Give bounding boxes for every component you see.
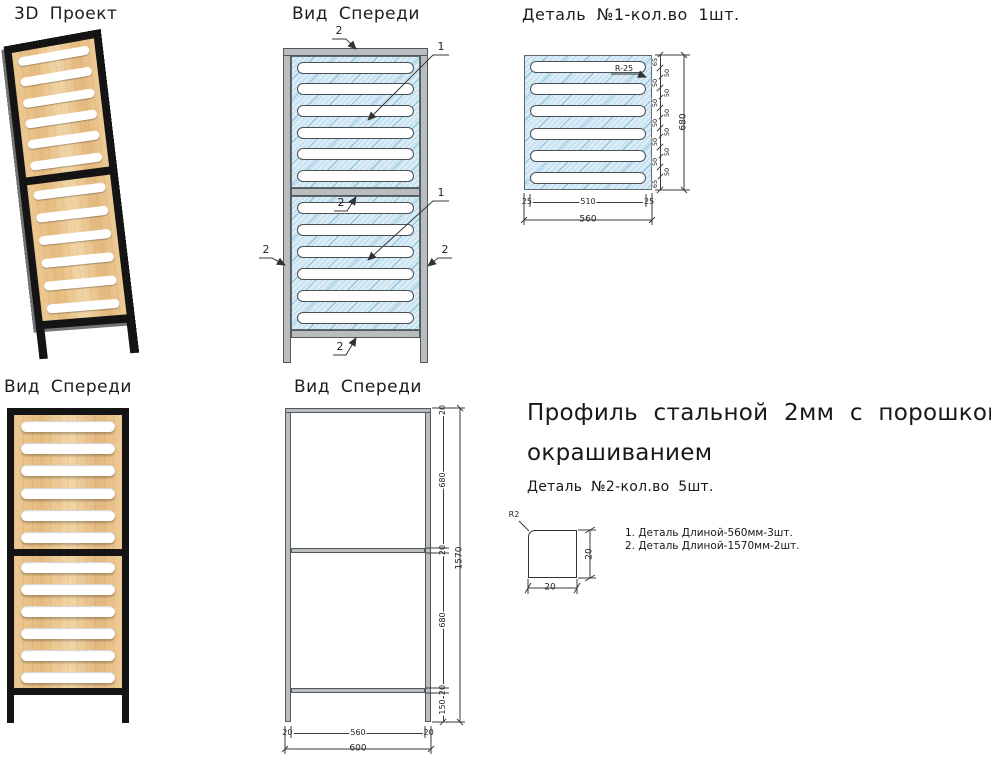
dim-label: 20 [439,684,447,696]
slot [27,131,100,150]
slot [297,105,414,117]
slot [21,672,115,683]
slot [297,127,414,139]
dim-label: 50 [664,147,671,157]
profile-width-dim: 20 [542,584,557,593]
spec-note-1: 1. Деталь Длиной-560мм-3шт. [625,527,800,540]
dim-label: 150 [439,698,447,715]
frame-mid-bar [291,548,425,553]
slot [21,584,115,595]
spec-note-2: 2. Деталь Длиной-1570мм-2шт. [625,540,800,553]
frame-left-rail [285,408,291,722]
front-panel-upper [291,56,420,188]
slot [530,105,646,117]
slot [297,246,414,258]
title-front-view: Вид Спереди [292,4,420,24]
slot [46,299,120,314]
callout-bottom-bar: 2 [337,341,344,352]
slot [18,45,90,66]
slot [21,650,115,661]
dim-label: 20 [281,729,293,737]
slot [21,628,115,639]
slot [530,128,646,140]
slot [21,510,115,521]
drawing-sheet: 3D Проект Вид Спереди Деталь №1-кол.во 1… [0,0,991,760]
3d-panel-upper [12,38,109,177]
render-panel-lower [14,556,122,688]
dim-label: 50 [664,107,671,117]
slot [297,312,414,324]
detail1-panel [524,55,652,190]
slot [21,465,115,476]
slot [530,172,646,184]
spec-heading-line2: окрашиванием [527,440,712,466]
front-bottom-bar [291,330,420,338]
3d-render [4,29,140,361]
slot [23,88,95,108]
slot [25,109,97,129]
3d-leg-left [36,327,48,359]
detail1-bottom-total: 560 [577,216,598,225]
front-right-rail [420,48,428,363]
render-panel-upper [14,415,122,549]
dim-label: 560 [349,729,366,737]
3d-leg-right [126,320,139,353]
dim-label: 50 [664,127,671,137]
dim-label: 20 [439,544,447,556]
profile-height-dim: 20 [586,546,595,561]
slot [297,202,414,214]
detail1-radius-label: R-25 [613,65,635,73]
dim-label: 50 [664,167,671,177]
dim-label: 680 [439,471,447,488]
dim-label: 25 [521,198,533,206]
profile-square [528,530,577,578]
profile-radius-label: R2 [507,511,522,519]
slot [297,83,414,95]
slot [33,182,106,200]
dim-label: 20 [423,729,435,737]
slot [20,67,92,88]
slot [44,275,117,291]
dim-label: 680 [439,611,447,628]
detail1-side-total: 680 [680,111,689,132]
spec-subheading: Деталь №2-кол.во 5шт. [527,479,714,495]
dim-label: 50 [652,97,659,107]
dim-label: 50 [652,157,659,167]
slot [297,290,414,302]
slot [41,252,114,268]
3d-panel-lower [27,175,127,321]
frame-bottom-bar [291,688,425,693]
callout-mid-bar: 2 [338,197,345,208]
callout-right-rail: 2 [442,244,449,255]
frame-right-rail [425,408,431,722]
dim-tick [439,718,446,725]
callout-left-rail: 2 [263,244,270,255]
front-mid-bar [291,188,420,196]
render-mid-bar [7,549,129,556]
dim-label: 65 [652,56,659,66]
slot [297,148,414,160]
dim-label: 50 [664,68,671,78]
frame-top-bar [285,408,431,413]
title-3d-view: 3D Проект [14,4,117,24]
slot [21,532,115,543]
3d-frame [4,29,136,330]
dim-label: 20 [439,404,447,416]
title-render-view: Вид Спереди [4,377,132,397]
slot [530,150,646,162]
slot [297,224,414,236]
front-panel-lower [291,196,420,330]
frame-side-total: 1570 [456,545,465,572]
dim-label: 65 [652,178,659,188]
slot [36,206,109,223]
dim-label: 50 [652,137,659,147]
dim-label: 50 [652,78,659,88]
title-frame-view: Вид Спереди [294,377,422,397]
render-leg-left [7,695,14,723]
title-detail1: Деталь №1-кол.во 1шт. [522,5,740,24]
dim-label: 510 [579,198,596,206]
spec-heading-line1: Профиль стальной 2мм с порошковым [527,400,991,426]
slot [530,83,646,95]
slot [21,421,115,432]
dim-label: 50 [652,117,659,127]
slot [21,562,115,573]
frame-bottom-total: 600 [347,745,368,754]
slot [38,229,111,246]
slot [21,488,115,499]
callout-lower-panel: 1 [438,187,445,198]
spec-notes: 1. Деталь Длиной-560мм-3шт. 2. Деталь Дл… [625,527,800,553]
front-top-bar [283,48,428,56]
slot [297,62,414,74]
slot [297,170,414,182]
front-left-rail [283,48,291,363]
slot [297,268,414,280]
render-leg-right [122,695,129,723]
callout-upper-panel: 1 [438,41,445,52]
dim-label: 25 [643,198,655,206]
slot [21,443,115,454]
callout-top-bar: 2 [336,25,343,36]
slot [21,606,115,617]
render-frame [7,408,129,695]
dimension-lines-overlay [0,0,991,760]
dim-label: 50 [664,88,671,98]
